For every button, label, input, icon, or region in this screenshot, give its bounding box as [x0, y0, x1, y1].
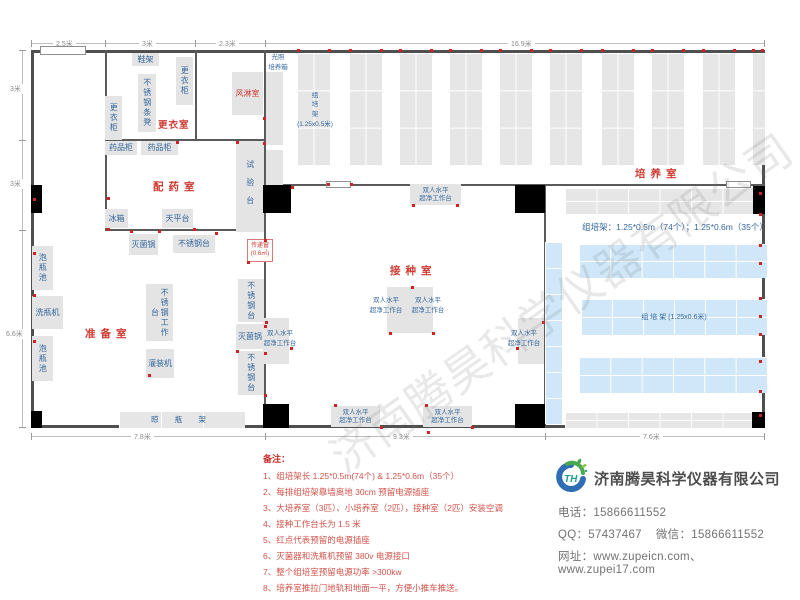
power-socket-dot — [425, 404, 428, 407]
qq-label: QQ： — [558, 529, 588, 541]
clean-bench-label: 双人水平 超净工作台 — [502, 329, 546, 349]
dimension-tick — [19, 427, 26, 428]
door — [263, 404, 289, 428]
wechat-value: 15866611552 — [691, 529, 764, 541]
phone-label: 电话： — [558, 507, 593, 519]
equipment-box: 更衣柜 — [176, 57, 193, 105]
power-socket-dot — [130, 230, 133, 233]
culture-rack-vertical — [499, 53, 532, 165]
dimension-label: 2.3米 — [216, 39, 239, 49]
culture-rack-vertical — [449, 53, 482, 165]
clean-bench: 双人水平 超净工作台 — [331, 406, 380, 427]
power-socket-dot — [350, 183, 353, 186]
power-socket-dot — [759, 262, 762, 265]
dimension-label: 3米 — [7, 179, 24, 189]
equipment-box — [266, 72, 283, 145]
dimension-tick — [195, 40, 196, 47]
equipment-box: 冰箱 — [105, 209, 128, 228]
power-socket-dot — [601, 49, 604, 52]
power-socket-dot — [380, 426, 383, 429]
power-socket-dot — [349, 49, 352, 52]
door-opening — [40, 46, 86, 55]
equipment-box: 天平台 — [162, 209, 193, 228]
equipment-box: 更衣柜 — [105, 96, 122, 140]
power-socket-dot — [264, 239, 267, 242]
power-socket-dot — [530, 49, 533, 52]
clean-bench: 双人水平 超净工作台 — [410, 184, 461, 205]
clean-bench: 双人水平 超净工作台 — [423, 406, 472, 427]
dimension-tick — [19, 50, 26, 51]
door — [753, 186, 765, 214]
power-socket-dot — [759, 297, 762, 300]
equipment-box: 试验台 — [236, 141, 264, 232]
qq-value: 57437467 — [588, 529, 642, 541]
door — [515, 404, 545, 428]
air-shower-room: 风淋室 — [232, 72, 263, 115]
power-socket-dot — [412, 204, 415, 207]
dimension-label: 7.6米 — [640, 432, 663, 442]
notes-list: 1、组培架长 1.25*0.5m(74个) & 1.25*0.6m（35个）2、… — [263, 468, 563, 596]
power-socket-dot — [759, 213, 762, 216]
power-socket-dot — [759, 414, 762, 417]
dimension-label: 3米 — [7, 84, 24, 94]
power-socket-dot — [264, 394, 267, 397]
power-socket-dot — [107, 228, 110, 231]
dimension-line — [22, 50, 23, 428]
power-socket-dot — [33, 294, 36, 297]
equipment-label: 组 培 架 (1.25x0.5米) — [295, 80, 335, 140]
power-socket-dot — [702, 49, 705, 52]
dimension-tick — [265, 40, 266, 47]
company-logo-text: TH — [564, 474, 578, 485]
culture-rack-horizontal — [565, 412, 754, 428]
power-socket-dot — [432, 332, 435, 335]
interior-wall — [195, 50, 197, 141]
room-label: 培养室 — [635, 166, 682, 181]
power-socket-dot — [236, 350, 239, 353]
culture-rack-horizontal: 组 培 架 (1.25x0.6米) — [581, 299, 767, 335]
equipment-box: 不锈钢工作台 — [146, 284, 173, 341]
culture-rack-vertical — [601, 53, 634, 165]
room-label: 更衣室 — [158, 117, 190, 131]
power-socket-dot — [430, 49, 433, 52]
culture-rack-horizontal: 晾 瓶 架 — [119, 411, 245, 428]
power-socket-dot — [380, 49, 383, 52]
power-socket-dot — [549, 49, 552, 52]
power-socket-dot — [449, 49, 452, 52]
note-item: 8、培养室推拉门地轨和地面一平，方便小推车推送。 — [263, 580, 563, 596]
power-socket-dot — [263, 142, 266, 145]
rack-label: 组 培 架 (1.25x0.6米) — [641, 312, 706, 322]
dimension-tick — [105, 40, 106, 47]
equipment-box: 不锈钢台 — [238, 279, 264, 322]
power-socket-dot — [264, 352, 267, 355]
transfer-window: 传递窗 (0.6㎡) — [247, 239, 273, 262]
note-item: 2、每排组培架靠墙离地 30cm 预留电源插座 — [263, 484, 563, 500]
note-item: 4、接种工作台长为 1.5 米 — [263, 516, 563, 532]
power-socket-dot — [290, 347, 293, 350]
company-name: 济南腾昊科学仪器有限公司 — [594, 468, 780, 489]
phone-value: 15866611552 — [593, 507, 666, 519]
power-socket-dot — [215, 232, 218, 235]
culture-rack-vertical — [702, 53, 735, 165]
equipment-box: 鞋架 — [132, 53, 159, 66]
dimension-tick — [19, 140, 26, 141]
power-socket-dot — [516, 347, 519, 350]
floor-plan-page: 济南腾昊科学仪器有限公司 组 培 架 (1.25x0.6米)晾 瓶 架鞋架更衣柜… — [0, 0, 800, 600]
power-socket-dot — [399, 49, 402, 52]
power-socket-dot — [682, 49, 685, 52]
dimension-tick — [31, 433, 32, 440]
door — [263, 185, 291, 213]
power-socket-dot — [389, 332, 392, 335]
rack-spec-note: 组培架：1.25*0.5m（74个）；1.25*0.6m（35个） — [575, 221, 775, 234]
power-socket-dot — [328, 49, 331, 52]
power-socket-dot — [759, 360, 762, 363]
clean-bench-label: 双人水平 超净工作台 — [406, 296, 450, 316]
power-socket-dot — [471, 426, 474, 429]
dimension-tick — [764, 433, 765, 440]
equipment-box: 洗瓶机 — [32, 296, 63, 329]
power-socket-dot — [247, 261, 250, 264]
dimension-tick — [31, 40, 32, 47]
rack-label: 晾 瓶 架 — [151, 414, 213, 425]
power-socket-dot — [264, 325, 267, 328]
power-socket-dot — [427, 431, 430, 434]
room-label: 准备室 — [85, 326, 132, 341]
equipment-box: 不锈钢台 — [173, 235, 215, 253]
wechat-label: 微信： — [656, 529, 691, 541]
power-socket-dot — [542, 321, 545, 324]
culture-rack-vertical — [549, 53, 582, 165]
note-item: 6、灭菌器和洗瓶机预留 380v 电源接口 — [263, 548, 563, 564]
power-socket-dot — [33, 340, 36, 343]
power-socket-dot — [158, 230, 161, 233]
clean-bench-label: 双人水平 超净工作台 — [364, 296, 408, 316]
clean-bench-label: 双人水平 超净工作台 — [258, 329, 302, 349]
dimension-tick — [265, 433, 266, 440]
note-item: 5、红点代表预留的电源插座 — [263, 532, 563, 548]
culture-rack-horizontal — [579, 357, 767, 393]
power-socket-dot — [752, 49, 755, 52]
equipment-box — [266, 150, 283, 185]
power-socket-dot — [297, 49, 300, 52]
power-socket-dot — [148, 374, 151, 377]
note-item: 1、组培架长 1.25*0.5m(74个) & 1.25*0.6m（35个） — [263, 468, 563, 484]
dimension-label: 6.6米 — [3, 329, 26, 339]
culture-rack-vertical — [349, 53, 382, 165]
power-socket-dot — [480, 49, 483, 52]
dimension-tick — [19, 230, 26, 231]
culture-rack-vertical — [752, 53, 765, 165]
power-socket-dot — [263, 117, 266, 120]
power-socket-dot — [33, 198, 36, 201]
company-phone-line: 电话：15866611552 — [558, 504, 782, 520]
company-qq-line: QQ：57437467微信：15866611552 — [558, 526, 782, 542]
web-label: 网址： — [558, 551, 593, 563]
company-web-line: 网址：www.zupeicn.com、www.zupei17.com — [558, 548, 782, 576]
room-label: 配药室 — [153, 179, 200, 194]
power-socket-dot — [761, 49, 764, 52]
power-socket-dot — [733, 49, 736, 52]
power-socket-dot — [759, 315, 762, 318]
culture-rack-vertical — [651, 53, 684, 165]
power-socket-dot — [33, 252, 36, 255]
power-socket-dot — [327, 183, 330, 186]
equipment-box: 灭菌锅 — [129, 234, 158, 255]
culture-rack-horizontal — [565, 188, 754, 214]
note-item: 7、整个组培室预留电源功率 >300kw — [263, 564, 563, 580]
power-socket-dot — [580, 49, 583, 52]
equipment-box: 药品柜 — [105, 141, 137, 155]
dimension-tick — [545, 433, 546, 440]
power-socket-dot — [499, 49, 502, 52]
door — [515, 185, 545, 213]
room-label: 接种室 — [390, 263, 437, 278]
culture-rack-vertical — [399, 53, 432, 165]
power-socket-dot — [759, 192, 762, 195]
notes-title: 备注： — [263, 452, 563, 465]
power-socket-dot — [176, 141, 179, 144]
power-socket-dot — [759, 244, 762, 247]
dimension-label: 3米 — [139, 39, 156, 49]
power-socket-dot — [107, 197, 110, 200]
equipment-box: 不锈钢台 — [238, 351, 264, 395]
power-socket-dot — [193, 228, 196, 231]
door — [31, 411, 42, 428]
door-opening — [726, 181, 751, 188]
culture-rack-horizontal — [579, 244, 767, 278]
note-item: 3、大培养室（3匹）、小培养室（2匹），接种室（2匹）安装空调 — [263, 500, 563, 516]
dimension-label: 16.9米 — [508, 39, 535, 49]
power-socket-dot — [291, 186, 294, 189]
power-socket-dot — [759, 390, 762, 393]
company-logo-icon: TH — [552, 458, 590, 498]
equipment-label: 光照 培养箱 — [264, 53, 292, 73]
power-socket-dot — [334, 404, 337, 407]
dimension-label: 7.8米 — [131, 432, 154, 442]
dimension-label: 9.3米 — [390, 432, 413, 442]
power-socket-dot — [651, 49, 654, 52]
equipment-box: 药品柜 — [141, 141, 178, 155]
power-socket-dot — [411, 286, 414, 289]
notes-section: 备注： 1、组培架长 1.25*0.5m(74个) & 1.25*0.6m（35… — [263, 452, 563, 596]
power-socket-dot — [265, 321, 268, 324]
equipment-box: 不锈钢条凳 — [138, 74, 156, 132]
power-socket-dot — [632, 49, 635, 52]
culture-rack-vertical — [545, 242, 562, 424]
power-socket-dot — [759, 333, 762, 336]
power-socket-dot — [456, 204, 459, 207]
company-info: TH 济南腾昊科学仪器有限公司 电话：15866611552 QQ：574374… — [552, 458, 782, 576]
dimension-tick — [764, 40, 765, 47]
power-socket-dot — [236, 141, 239, 144]
